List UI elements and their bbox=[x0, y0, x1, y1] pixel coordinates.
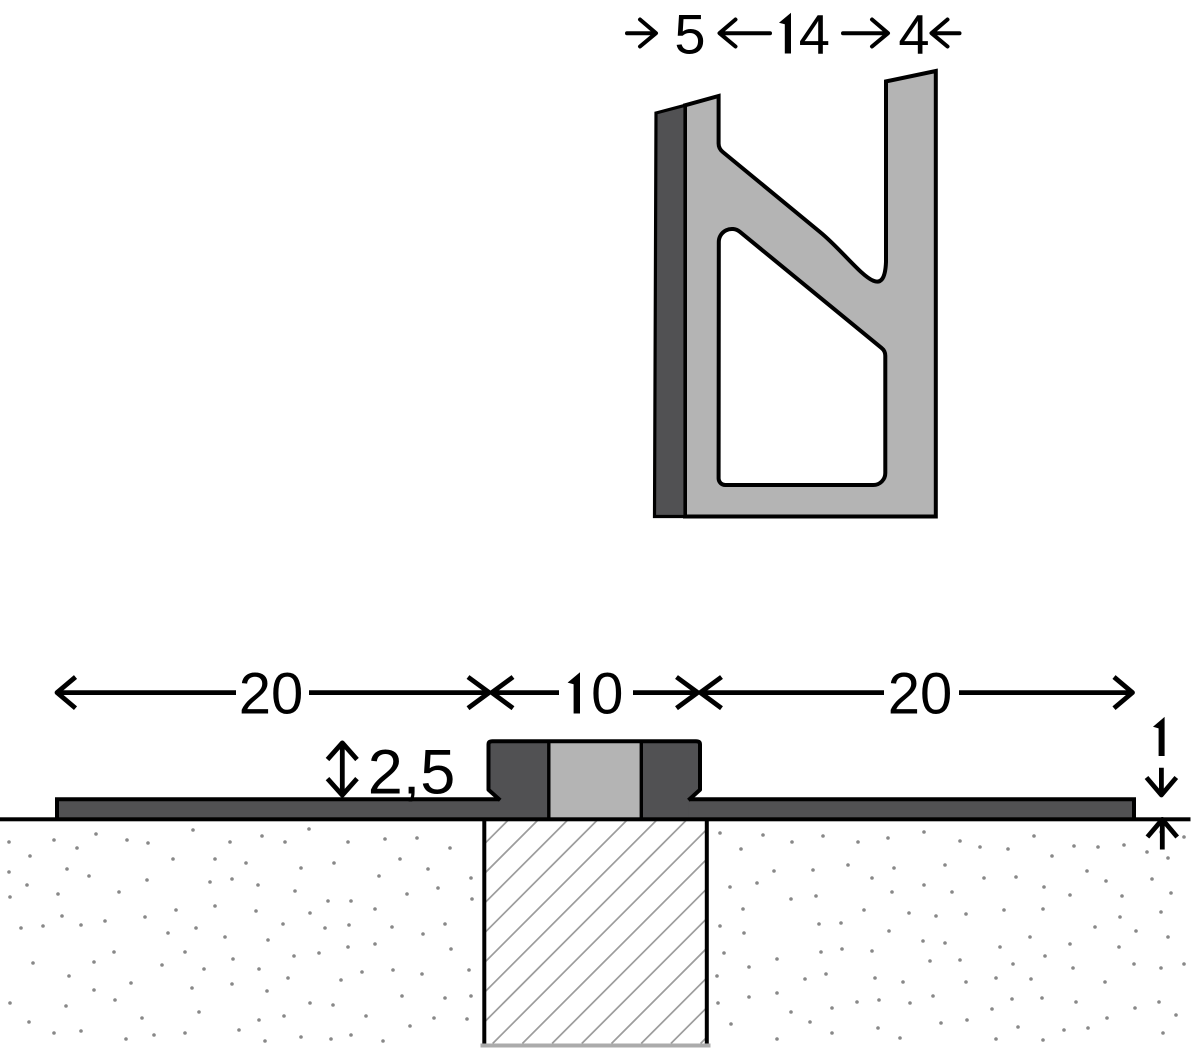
svg-text:4: 4 bbox=[898, 3, 929, 66]
svg-text:20: 20 bbox=[888, 662, 953, 727]
svg-text:4: 4 bbox=[799, 3, 830, 66]
svg-text:20: 20 bbox=[239, 662, 304, 727]
svg-text:2,5: 2,5 bbox=[368, 737, 456, 807]
svg-text:0: 0 bbox=[591, 662, 623, 727]
svg-text:5: 5 bbox=[674, 3, 705, 66]
